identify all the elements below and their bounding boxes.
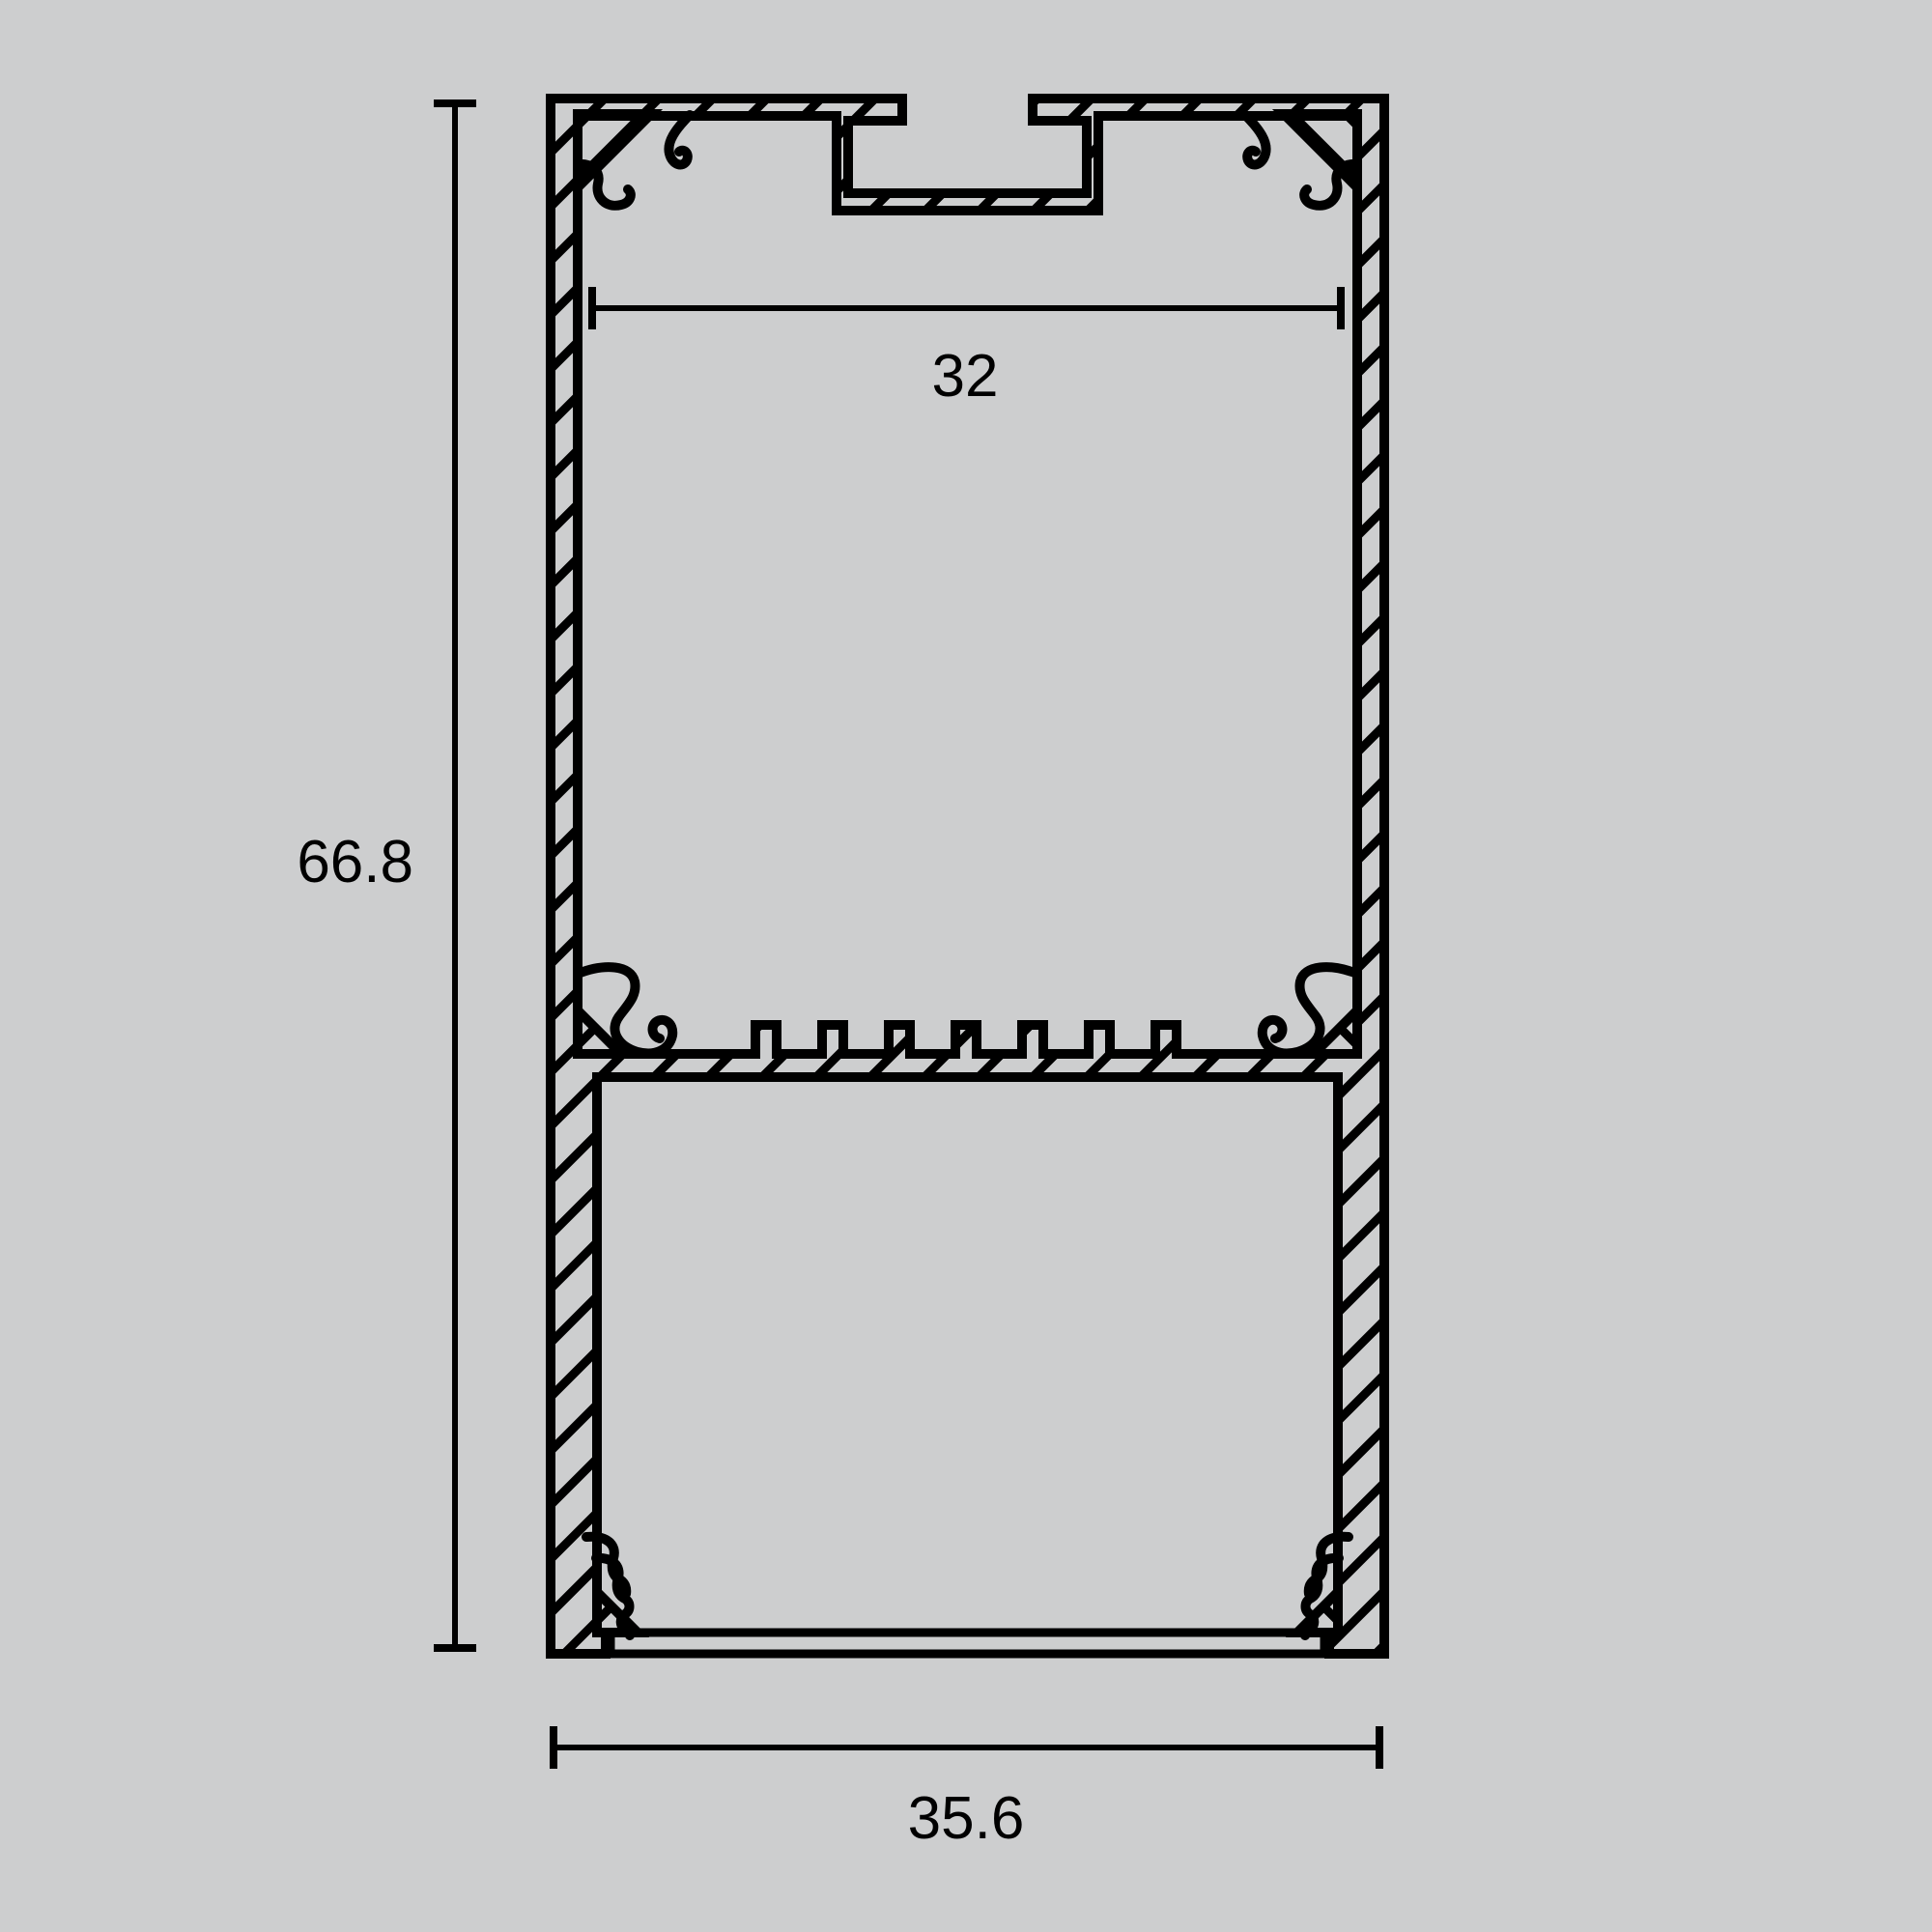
technical-drawing-canvas: 66.8 32 35.6 <box>0 0 1932 1932</box>
dimension-height-label: 66.8 <box>297 829 413 895</box>
dimension-outer-width-label: 35.6 <box>908 1785 1025 1852</box>
drawing-background <box>0 0 1932 1932</box>
profile-cross-section-drawing: 66.8 32 35.6 <box>0 0 1932 1932</box>
dimension-inner-width-label: 32 <box>932 343 999 410</box>
